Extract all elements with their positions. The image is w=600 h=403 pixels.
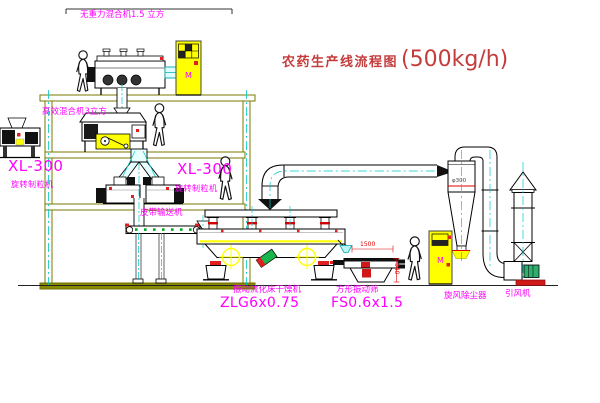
granulator-far-left [0, 118, 40, 158]
label-granulator-left-name: 旋转制粒机 [11, 181, 54, 189]
label-sieve-name: 方形振动筛 [336, 286, 379, 295]
label-granulator-left-model: XL-300 [8, 159, 63, 174]
label-dryer-model: ZLG6x0.75 [220, 296, 299, 310]
cabinet-b-mark: M [437, 257, 444, 265]
page-title: 农药生产线流程图 (500kg/h) [282, 47, 508, 72]
label-fan: 引风机 [505, 290, 531, 299]
dim-sieve-length: 1500 [360, 242, 375, 248]
pesticide-production-flowchart: 农药生产线流程图 (500kg/h) 无重力混合机1.5 立方 高效混合机3立方… [0, 0, 600, 403]
label-cyclone: 旋风除尘器 [444, 292, 487, 301]
title-capacity: (500kg/h) [401, 47, 508, 72]
label-granulator-center-model: XL-300 [177, 162, 232, 177]
dim-sieve-height: 340 [393, 263, 399, 274]
label-belt-conveyor: 皮带输送机 [140, 209, 183, 218]
title-chinese: 农药生产线流程图 [282, 51, 398, 70]
worker-figure [408, 237, 421, 280]
gravityless-mixer [87, 49, 178, 95]
label-high-efficiency-mixer: 高效混合机3立方 [42, 108, 107, 117]
label-granulator-center-name: 旋转制粒机 [175, 185, 218, 193]
worker-figure [153, 104, 166, 146]
label-gravityless-mixer: 无重力混合机1.5 立方 [80, 11, 164, 20]
label-dryer-name: 振动流化床干燥机 [233, 286, 301, 295]
cabinet-a-mark: M [185, 72, 192, 80]
belt-conveyor [125, 224, 200, 284]
exhaust-duct [258, 165, 445, 210]
control-cabinet-a [176, 41, 201, 95]
label-sieve-model: FS0.6x1.5 [331, 296, 403, 310]
induced-draft-fan [504, 262, 545, 286]
worker-figure [77, 51, 89, 92]
fluid-bed-dryer [197, 206, 350, 280]
cyclone-size-note: φ300 [452, 179, 466, 185]
